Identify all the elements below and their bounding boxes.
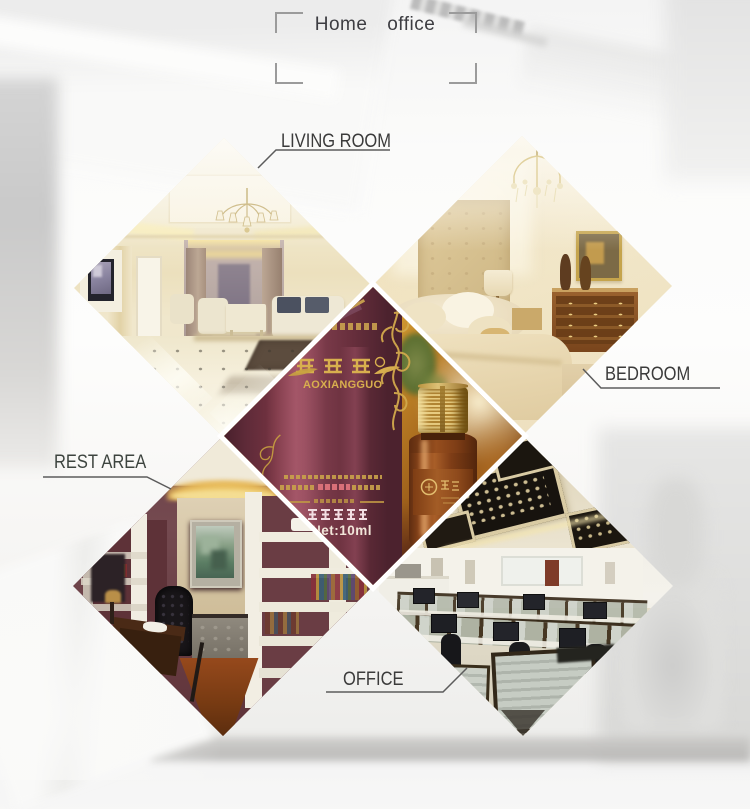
svg-text:AOXIANGGUO: AOXIANGGUO	[303, 379, 383, 391]
